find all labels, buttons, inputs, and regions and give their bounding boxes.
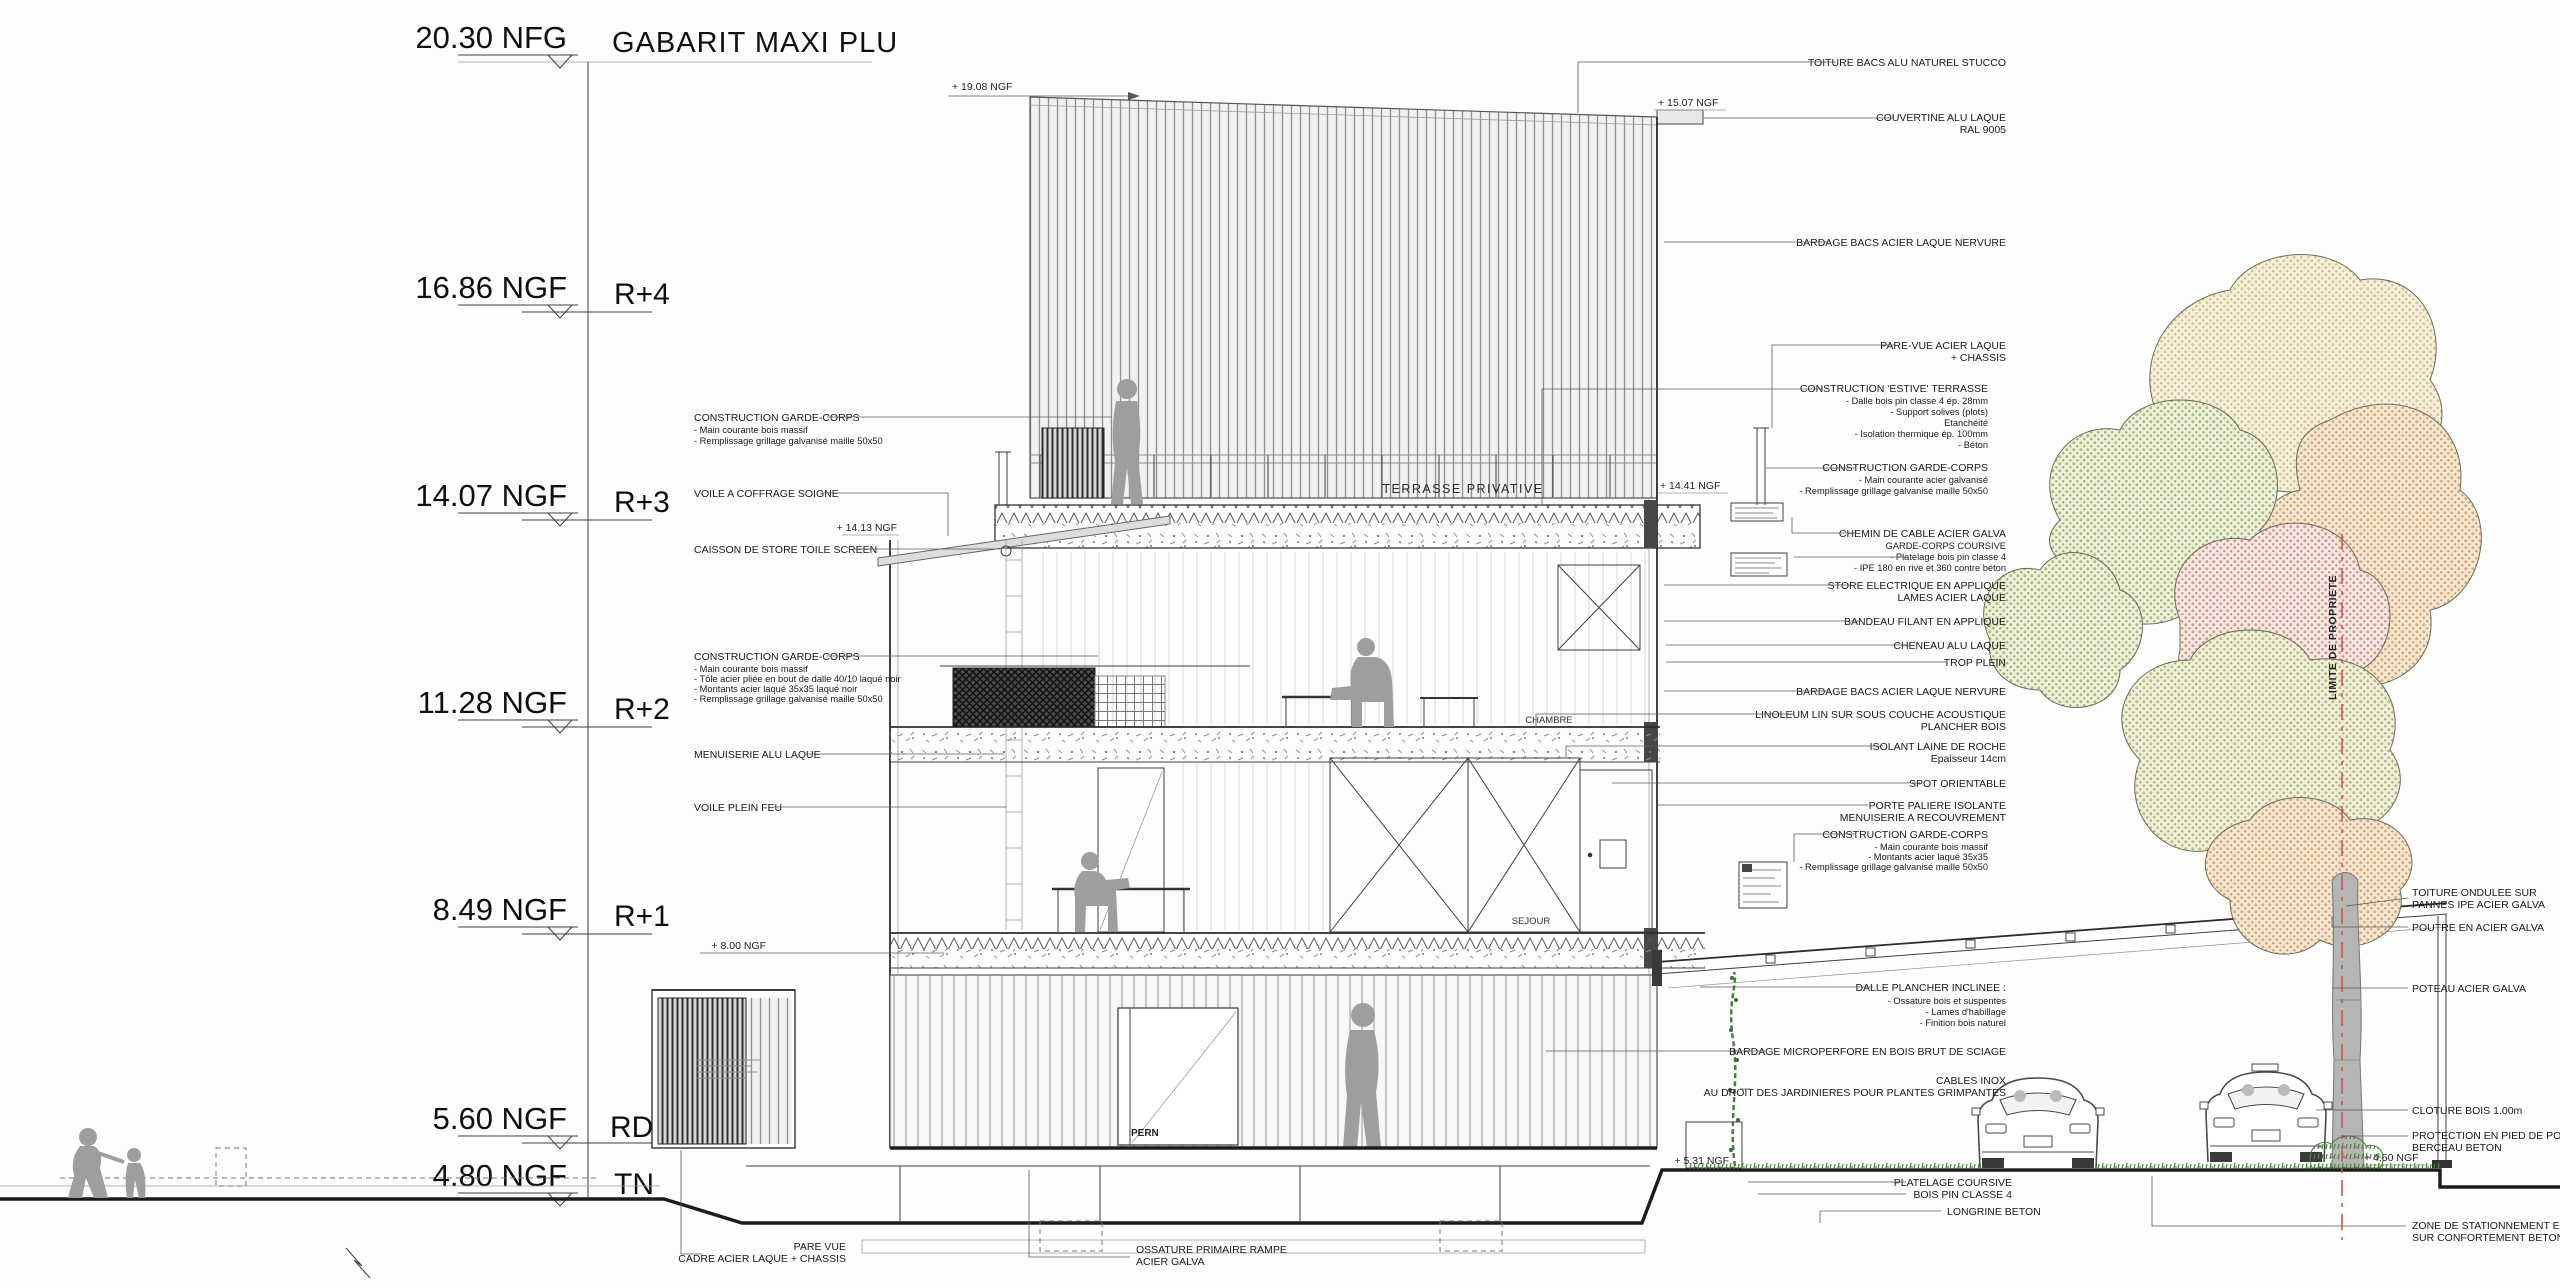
svg-text:- Tôle acier pliée en bout de: - Tôle acier pliée en bout de dalle 40/1… [694, 674, 901, 684]
svg-text:CONSTRUCTION 'ESTIVE' TERRASSE: CONSTRUCTION 'ESTIVE' TERRASSE [1800, 383, 1988, 395]
svg-text:CADRE ACIER LAQUE + CHASSIS: CADRE ACIER LAQUE + CHASSIS [678, 1253, 846, 1265]
ground-floor: PERN [890, 975, 1657, 1148]
svg-text:SUR CONFORTEMENT BETON ARME: SUR CONFORTEMENT BETON ARME [2412, 1232, 2560, 1244]
svg-text:CONSTRUCTION GARDE-CORPS: CONSTRUCTION GARDE-CORPS [694, 412, 860, 424]
svg-text:Etanchéité: Etanchéité [1944, 418, 1988, 428]
architectural-section-sheet: 20.30 NFG GABARIT MAXI PLU 16.86 NGF R+4… [0, 0, 2560, 1284]
svg-text:Epaisseur 14cm: Epaisseur 14cm [1931, 753, 2007, 765]
spot-1413: + 14.13 NGF [837, 522, 897, 534]
svg-text:16.86 NGF: 16.86 NGF [415, 270, 567, 305]
svg-text:ISOLANT LAINE DE ROCHE: ISOLANT LAINE DE ROCHE [1870, 741, 2006, 753]
svg-text:14.07 NGF: 14.07 NGF [415, 478, 567, 513]
spot-1908: + 19.08 NGF [952, 81, 1012, 93]
svg-text:- Ossature bois et suspentes: - Ossature bois et suspentes [1888, 996, 2007, 1006]
level-value: 20.30 NFG [415, 20, 567, 55]
svg-text:ZONE DE STATIONNEMENT ENROBE: ZONE DE STATIONNEMENT ENROBE [2412, 1220, 2560, 1232]
person-seated-r2 [1357, 638, 1375, 656]
svg-text:PORTE PALIERE ISOLANTE: PORTE PALIERE ISOLANTE [1869, 800, 2006, 812]
svg-text:11.28 NGF: 11.28 NGF [418, 685, 567, 720]
svg-text:TOITURE BACS ALU NATUREL STUCC: TOITURE BACS ALU NATUREL STUCCO [1808, 57, 2006, 69]
svg-text:- IPE 180 en rive et 360 contr: - IPE 180 en rive et 360 contre béton [1854, 563, 2006, 573]
svg-text:POUTRE EN ACIER GALVA: POUTRE EN ACIER GALVA [2412, 922, 2544, 934]
svg-text:TN: TN [614, 1168, 654, 1201]
svg-text:LAMES ACIER LAQUE: LAMES ACIER LAQUE [1897, 592, 2006, 604]
svg-text:- Lames d'habillage: - Lames d'habillage [1926, 1007, 2006, 1017]
person-seated-r1 [1081, 852, 1099, 870]
svg-text:BARDAGE BACS ACIER LAQUE NERVU: BARDAGE BACS ACIER LAQUE NERVURE [1796, 686, 2006, 698]
svg-text:PARE-VUE ACIER LAQUE: PARE-VUE ACIER LAQUE [1880, 340, 2006, 352]
svg-text:BARDAGE BACS ACIER LAQUE NERVU: BARDAGE BACS ACIER LAQUE NERVURE [1796, 237, 2006, 249]
svg-text:OSSATURE PRIMAIRE RAMPE: OSSATURE PRIMAIRE RAMPE [1136, 1244, 1287, 1256]
svg-text:R+4: R+4 [614, 278, 670, 311]
svg-text:VOILE PLEIN FEU: VOILE PLEIN FEU [694, 802, 782, 814]
svg-text:- Main courante bois massif: - Main courante bois massif [694, 664, 808, 674]
svg-text:- Finition bois naturel: - Finition bois naturel [1920, 1018, 2006, 1028]
svg-text:R+1: R+1 [614, 900, 670, 933]
svg-text:- Dalle bois pin classe 4 ép.: - Dalle bois pin classe 4 ép. 28mm [1846, 396, 1988, 406]
svg-text:CONSTRUCTION GARDE-CORPS: CONSTRUCTION GARDE-CORPS [694, 651, 860, 663]
svg-text:TOITURE ONDULEE SUR: TOITURE ONDULEE SUR [2412, 887, 2537, 899]
svg-text:COUVERTINE ALU LAQUE: COUVERTINE ALU LAQUE [1876, 112, 2006, 124]
svg-text:CABLES INOX: CABLES INOX [1936, 1075, 2006, 1087]
svg-text:STORE ELECTRIQUE EN APPLIQUE: STORE ELECTRIQUE EN APPLIQUE [1828, 580, 2006, 592]
svg-text:R+3: R+3 [614, 486, 670, 519]
svg-text:- Platelage bois pin classe 4: - Platelage bois pin classe 4 [1890, 552, 2006, 562]
svg-text:RAL 9005: RAL 9005 [1960, 124, 2006, 136]
svg-text:SPOT ORIENTABLE: SPOT ORIENTABLE [1909, 778, 2006, 790]
svg-text:CHEMIN DE CABLE ACIER GALVA: CHEMIN DE CABLE ACIER GALVA [1839, 528, 2006, 540]
svg-text:4.80 NGF: 4.80 NGF [433, 1158, 567, 1193]
room-terrace: TERRASSE PRIVATIVE [1382, 482, 1543, 496]
svg-text:- Isolation thermique ép. 100m: - Isolation thermique ép. 100mm [1855, 429, 1989, 439]
svg-text:- Montants acier laqué 35x35 l: - Montants acier laqué 35x35 laqué noir [694, 684, 857, 694]
door-tag: PERN [1131, 1128, 1159, 1139]
svg-text:MENUISERIE A RECOUVREMENT: MENUISERIE A RECOUVREMENT [1840, 812, 2007, 824]
property-limit-label: LIMITE DE PROPRIETE [2327, 575, 2339, 700]
svg-text:POTEAU ACIER GALVA: POTEAU ACIER GALVA [2412, 983, 2526, 995]
svg-text:- Remplissage grillage galvani: - Remplissage grillage galvanisé maille … [1799, 486, 1988, 496]
svg-text:PANNES IPE ACIER GALVA: PANNES IPE ACIER GALVA [2412, 899, 2545, 911]
svg-text:CAISSON DE STORE TOILE SCREEN: CAISSON DE STORE TOILE SCREEN [694, 544, 877, 556]
svg-text:- Main courante bois massif: - Main courante bois massif [1874, 842, 1988, 852]
svg-text:R+2: R+2 [614, 693, 670, 726]
svg-text:DALLE PLANCHER INCLINEE :: DALLE PLANCHER INCLINEE : [1855, 982, 2006, 994]
svg-text:- Remplissage grillage galvani: - Remplissage grillage galvanisé maille … [694, 694, 883, 704]
svg-text:- Main courante acier galvanis: - Main courante acier galvanisé [1859, 475, 1988, 485]
building-section-drawing: 20.30 NFG GABARIT MAXI PLU 16.86 NGF R+4… [0, 0, 2560, 1284]
svg-text:- Béton: - Béton [1958, 440, 1988, 450]
svg-text:+ CHASSIS: + CHASSIS [1951, 352, 2006, 364]
svg-text:PLANCHER BOIS: PLANCHER BOIS [1921, 721, 2006, 733]
svg-text:BANDEAU FILANT EN APPLIQUE: BANDEAU FILANT EN APPLIQUE [1844, 616, 2006, 628]
svg-text:- Remplissage grillage galvani: - Remplissage grillage galvanisé maille … [1799, 862, 1988, 872]
svg-text:PARE VUE: PARE VUE [794, 1241, 846, 1253]
svg-text:PROTECTION EN PIED DE POTEAU: PROTECTION EN PIED DE POTEAU [2412, 1130, 2560, 1142]
svg-text:ACIER GALVA: ACIER GALVA [1136, 1256, 1204, 1268]
slab-r2 [890, 727, 1660, 762]
svg-text:TROP PLEIN: TROP PLEIN [1944, 657, 2006, 669]
svg-text:MENUISERIE ALU LAQUE: MENUISERIE ALU LAQUE [694, 749, 821, 761]
svg-text:BOIS PIN CLASSE 4: BOIS PIN CLASSE 4 [1913, 1189, 2012, 1201]
svg-text:8.49 NGF: 8.49 NGF [433, 892, 567, 927]
svg-text:- Montants acier laqué 35x35: - Montants acier laqué 35x35 [1868, 852, 1988, 862]
gabarit-label: GABARIT MAXI PLU [612, 27, 898, 59]
svg-text:CLOTURE BOIS 1.00m: CLOTURE BOIS 1.00m [2412, 1105, 2523, 1117]
spot-1507: + 15.07 NGF [1658, 97, 1718, 109]
svg-text:5.60 NGF: 5.60 NGF [433, 1101, 567, 1136]
upper-facade: + 19.08 NGF + 15.07 NGF [948, 81, 1726, 498]
svg-text:- Main courante bois massif: - Main courante bois massif [694, 425, 808, 435]
room-bedroom: CHAMBRE [1525, 715, 1573, 726]
svg-text:- Remplissage grillage galvani: - Remplissage grillage galvanisé maille … [694, 436, 883, 446]
spot-800: + 8.00 NGF [711, 940, 766, 952]
shed-gate [652, 990, 795, 1148]
svg-text:LINOLEUM LIN SUR SOUS COUCHE A: LINOLEUM LIN SUR SOUS COUCHE ACOUSTIQUE [1755, 709, 2006, 721]
svg-text:BARDAGE MICROPERFORE EN BOIS B: BARDAGE MICROPERFORE EN BOIS BRUT DE SCI… [1729, 1046, 2006, 1058]
svg-text:PLATELAGE COURSIVE: PLATELAGE COURSIVE [1894, 1177, 2012, 1189]
room-living: SEJOUR [1512, 916, 1551, 927]
svg-text:VOILE A COFFRAGE SOIGNE: VOILE A COFFRAGE SOIGNE [694, 488, 839, 500]
svg-text:LONGRINE BETON: LONGRINE BETON [1947, 1206, 2041, 1218]
spot-1441: + 14.41 NGF [1660, 480, 1720, 492]
svg-text:GARDE-CORPS COURSIVE: GARDE-CORPS COURSIVE [1886, 541, 2006, 551]
svg-text:- Support solives (plots): - Support solives (plots) [1890, 407, 1988, 417]
svg-text:CHENEAU ALU LAQUE: CHENEAU ALU LAQUE [1893, 640, 2006, 652]
svg-text:BERCEAU BETON: BERCEAU BETON [2412, 1142, 2502, 1154]
svg-text:CONSTRUCTION GARDE-CORPS: CONSTRUCTION GARDE-CORPS [1822, 829, 1988, 841]
person-standing-rdc [1351, 1003, 1375, 1027]
